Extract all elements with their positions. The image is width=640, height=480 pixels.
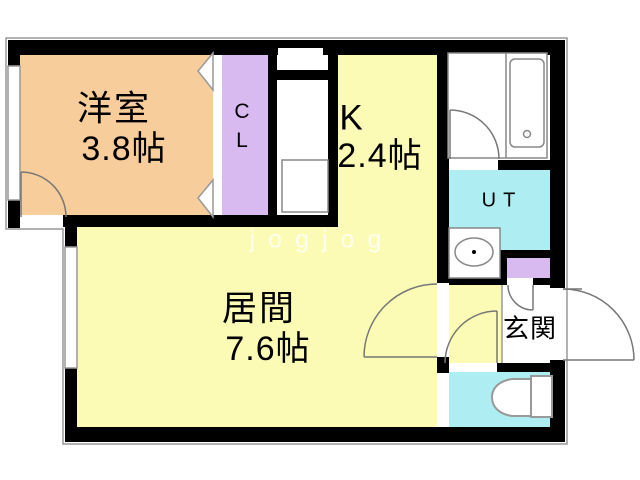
wall-closet-right [268,40,277,227]
closet-door-track [213,53,222,215]
wall-storage-bar [277,70,332,80]
western-room-window [8,66,20,200]
washbasin-icon [449,228,500,278]
living-room-name: 居間 [222,292,296,329]
western-room-door-opening [20,215,63,227]
floorplan: 洋室 3.8帖 C L K 2.4帖 UT 居間 7.6帖 玄関 jogjog [0,0,640,480]
kitchen-size: 2.4帖 [337,139,422,175]
front-door-swing [563,289,634,360]
living-room-size: 7.6帖 [225,332,310,368]
floorplan-drawing [0,0,640,480]
bathroom-unit-icon [448,53,547,158]
wall-washstand-bottom [437,278,565,285]
entrance-label: 玄関 [503,315,557,342]
utility-label: UT [482,191,523,212]
bath-door-opening [449,160,498,170]
western-room-name: 洋室 [77,92,151,129]
hallway-floor [449,283,502,365]
shoe-cabinet [507,258,550,278]
wall-kitchen-left [328,40,338,227]
bathtub-drain-icon [524,131,531,138]
living-room-window [65,247,77,368]
western-room-size: 3.8帖 [81,132,166,168]
closet-label-c: C [234,99,249,125]
storage-top-opening [278,48,323,70]
toilet-icon [492,376,552,417]
kitchen-name: K [339,101,364,138]
entrance-inner-door-opening [507,278,533,285]
wall-bottom [65,427,565,442]
wall-above-shoe-cabinet [500,250,565,258]
storage-box-icon [282,160,328,212]
toilet-door-opening [449,363,497,372]
closet-label-l: L [236,128,248,154]
